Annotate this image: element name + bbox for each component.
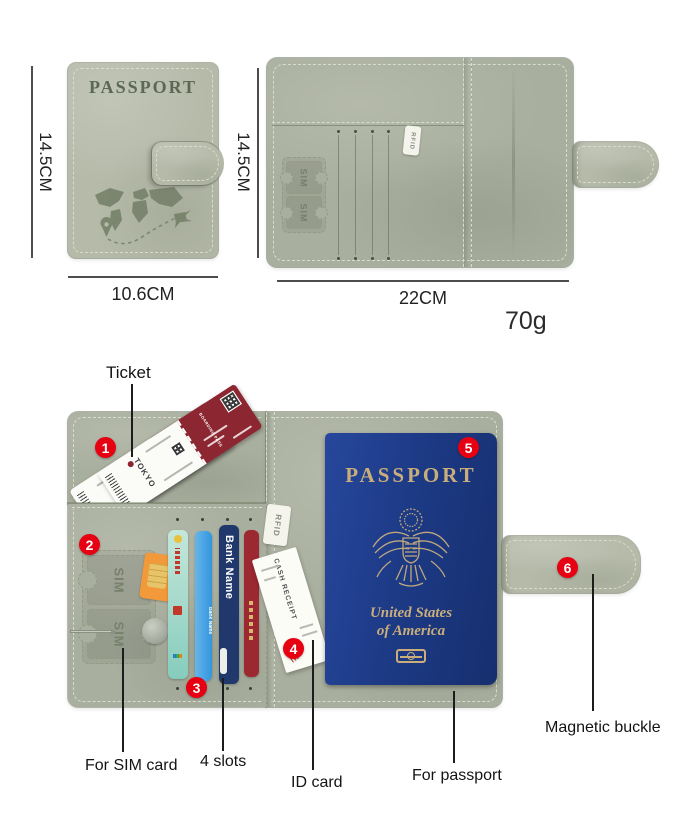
annotation-label-sim: For SIM card <box>85 757 177 775</box>
qr-code <box>220 390 242 412</box>
annotation-label-slots: 4 slots <box>200 753 246 771</box>
fold-crease <box>512 66 515 259</box>
card-slot-line <box>372 135 373 255</box>
destination-label: TOKYO <box>132 456 158 489</box>
width-dimension-line-closed <box>68 276 218 278</box>
bank-name-small: Bank Name <box>207 607 213 634</box>
bank-card-blue: Bank Name <box>195 531 212 681</box>
stitch-dot <box>176 518 179 521</box>
stitch-dot <box>226 687 229 690</box>
text-line <box>302 630 318 637</box>
annotation-label-passport: For passport <box>412 767 502 785</box>
closure-strap-open-view <box>573 142 658 187</box>
passport-title: PASSPORT <box>325 463 497 488</box>
width-dimension-line-open <box>277 280 569 282</box>
sim-eject-pin <box>70 630 112 633</box>
wallet-card-slot-panel: SIM SIM Bank Name Bank Name <box>68 503 266 707</box>
annotation-circle-6: 6 <box>557 557 578 578</box>
card-logo <box>173 606 182 615</box>
height-dimension-line-closed <box>31 66 33 258</box>
stitch-dot <box>226 518 229 521</box>
pointer-line-slots <box>222 678 224 751</box>
biometric-passport-symbol <box>396 649 426 663</box>
interior-pocket-edge <box>272 122 464 126</box>
card-logo <box>173 654 182 658</box>
sim-emboss-label: SIM <box>112 567 127 593</box>
height-dimension-label-closed: 14.5CM <box>35 132 55 192</box>
annotation-label-ticket: Ticket <box>106 363 151 383</box>
height-dimension-line-open <box>257 68 259 258</box>
stitch-border <box>156 146 219 181</box>
open-passport-cover-interior: SIM SIM RFID <box>267 58 573 267</box>
card-slot-line <box>388 135 389 255</box>
stitch-dot <box>176 687 179 690</box>
passport-subtitle-line1: United States <box>325 605 497 622</box>
stitch-dot <box>249 687 252 690</box>
sim-pocket: SIM <box>286 196 322 229</box>
annotation-label-idcard: ID card <box>291 774 343 792</box>
rfid-tag-label: RFID <box>408 131 416 150</box>
qr-code <box>170 441 187 458</box>
rfid-tag-label: RFID <box>271 513 283 537</box>
pointer-line-buckle <box>592 574 594 711</box>
card-slot-tab <box>220 648 227 674</box>
annotation-circle-1: 1 <box>95 437 116 458</box>
center-seam <box>463 58 472 267</box>
card-slot-line <box>355 135 356 255</box>
annotation-circle-3: 3 <box>186 677 207 698</box>
width-dimension-label-open: 22CM <box>277 288 569 309</box>
great-seal-eagle-emblem <box>369 503 453 597</box>
pointer-line-sim <box>122 648 124 752</box>
text-line <box>299 623 313 629</box>
stitch-border <box>72 507 262 508</box>
magnetic-button <box>142 618 168 644</box>
rfid-tag: RFID <box>263 504 292 547</box>
width-dimension-label-closed: 10.6CM <box>68 284 218 305</box>
weight-label: 70g <box>505 307 547 336</box>
annotation-circle-2: 2 <box>79 534 100 555</box>
bank-name-label: Bank Name <box>223 535 235 599</box>
sim-card-pockets: SIM SIM <box>282 157 326 233</box>
cover-embossed-title: PASSPORT <box>68 77 218 98</box>
annotation-circle-5: 5 <box>458 437 479 458</box>
rfid-tag: RFID <box>403 125 422 156</box>
us-passport-book: PASSPORT United States of America <box>325 433 497 685</box>
card-logo <box>174 535 182 543</box>
pointer-line-passport <box>453 691 455 763</box>
card-text-marks <box>175 548 180 574</box>
sim-emboss-label: SIM <box>299 203 309 222</box>
bank-card-navy: Bank Name <box>219 525 239 684</box>
sim-pocket: SIM <box>286 161 322 194</box>
annotation-circle-4: 4 <box>283 638 304 659</box>
height-dimension-label-open: 14.5CM <box>233 132 253 192</box>
stitch-dot <box>201 518 204 521</box>
sim-chip-contacts <box>147 563 169 589</box>
pointer-line-ticket <box>131 384 133 457</box>
stitch-dot <box>249 518 252 521</box>
passport-holder-infographic: 14.5CM PASSPORT 10.6CM 14.5CM <box>0 0 692 834</box>
world-map-graphic <box>88 183 200 253</box>
closed-passport-cover: PASSPORT <box>68 63 218 258</box>
card-text-marks <box>249 600 253 640</box>
pointer-line-idcard <box>312 640 314 770</box>
snap-closure-tab <box>152 142 223 185</box>
stitch-border <box>577 146 654 183</box>
bank-card-red <box>244 530 259 677</box>
text-line <box>145 435 171 453</box>
sim-emboss-label: SIM <box>299 168 309 187</box>
annotation-label-buckle: Magnetic buckle <box>545 719 661 737</box>
text-line <box>264 576 276 581</box>
passport-subtitle-line2: of America <box>325 623 497 640</box>
bank-card-teal <box>168 530 188 679</box>
card-slot-line <box>338 135 339 255</box>
